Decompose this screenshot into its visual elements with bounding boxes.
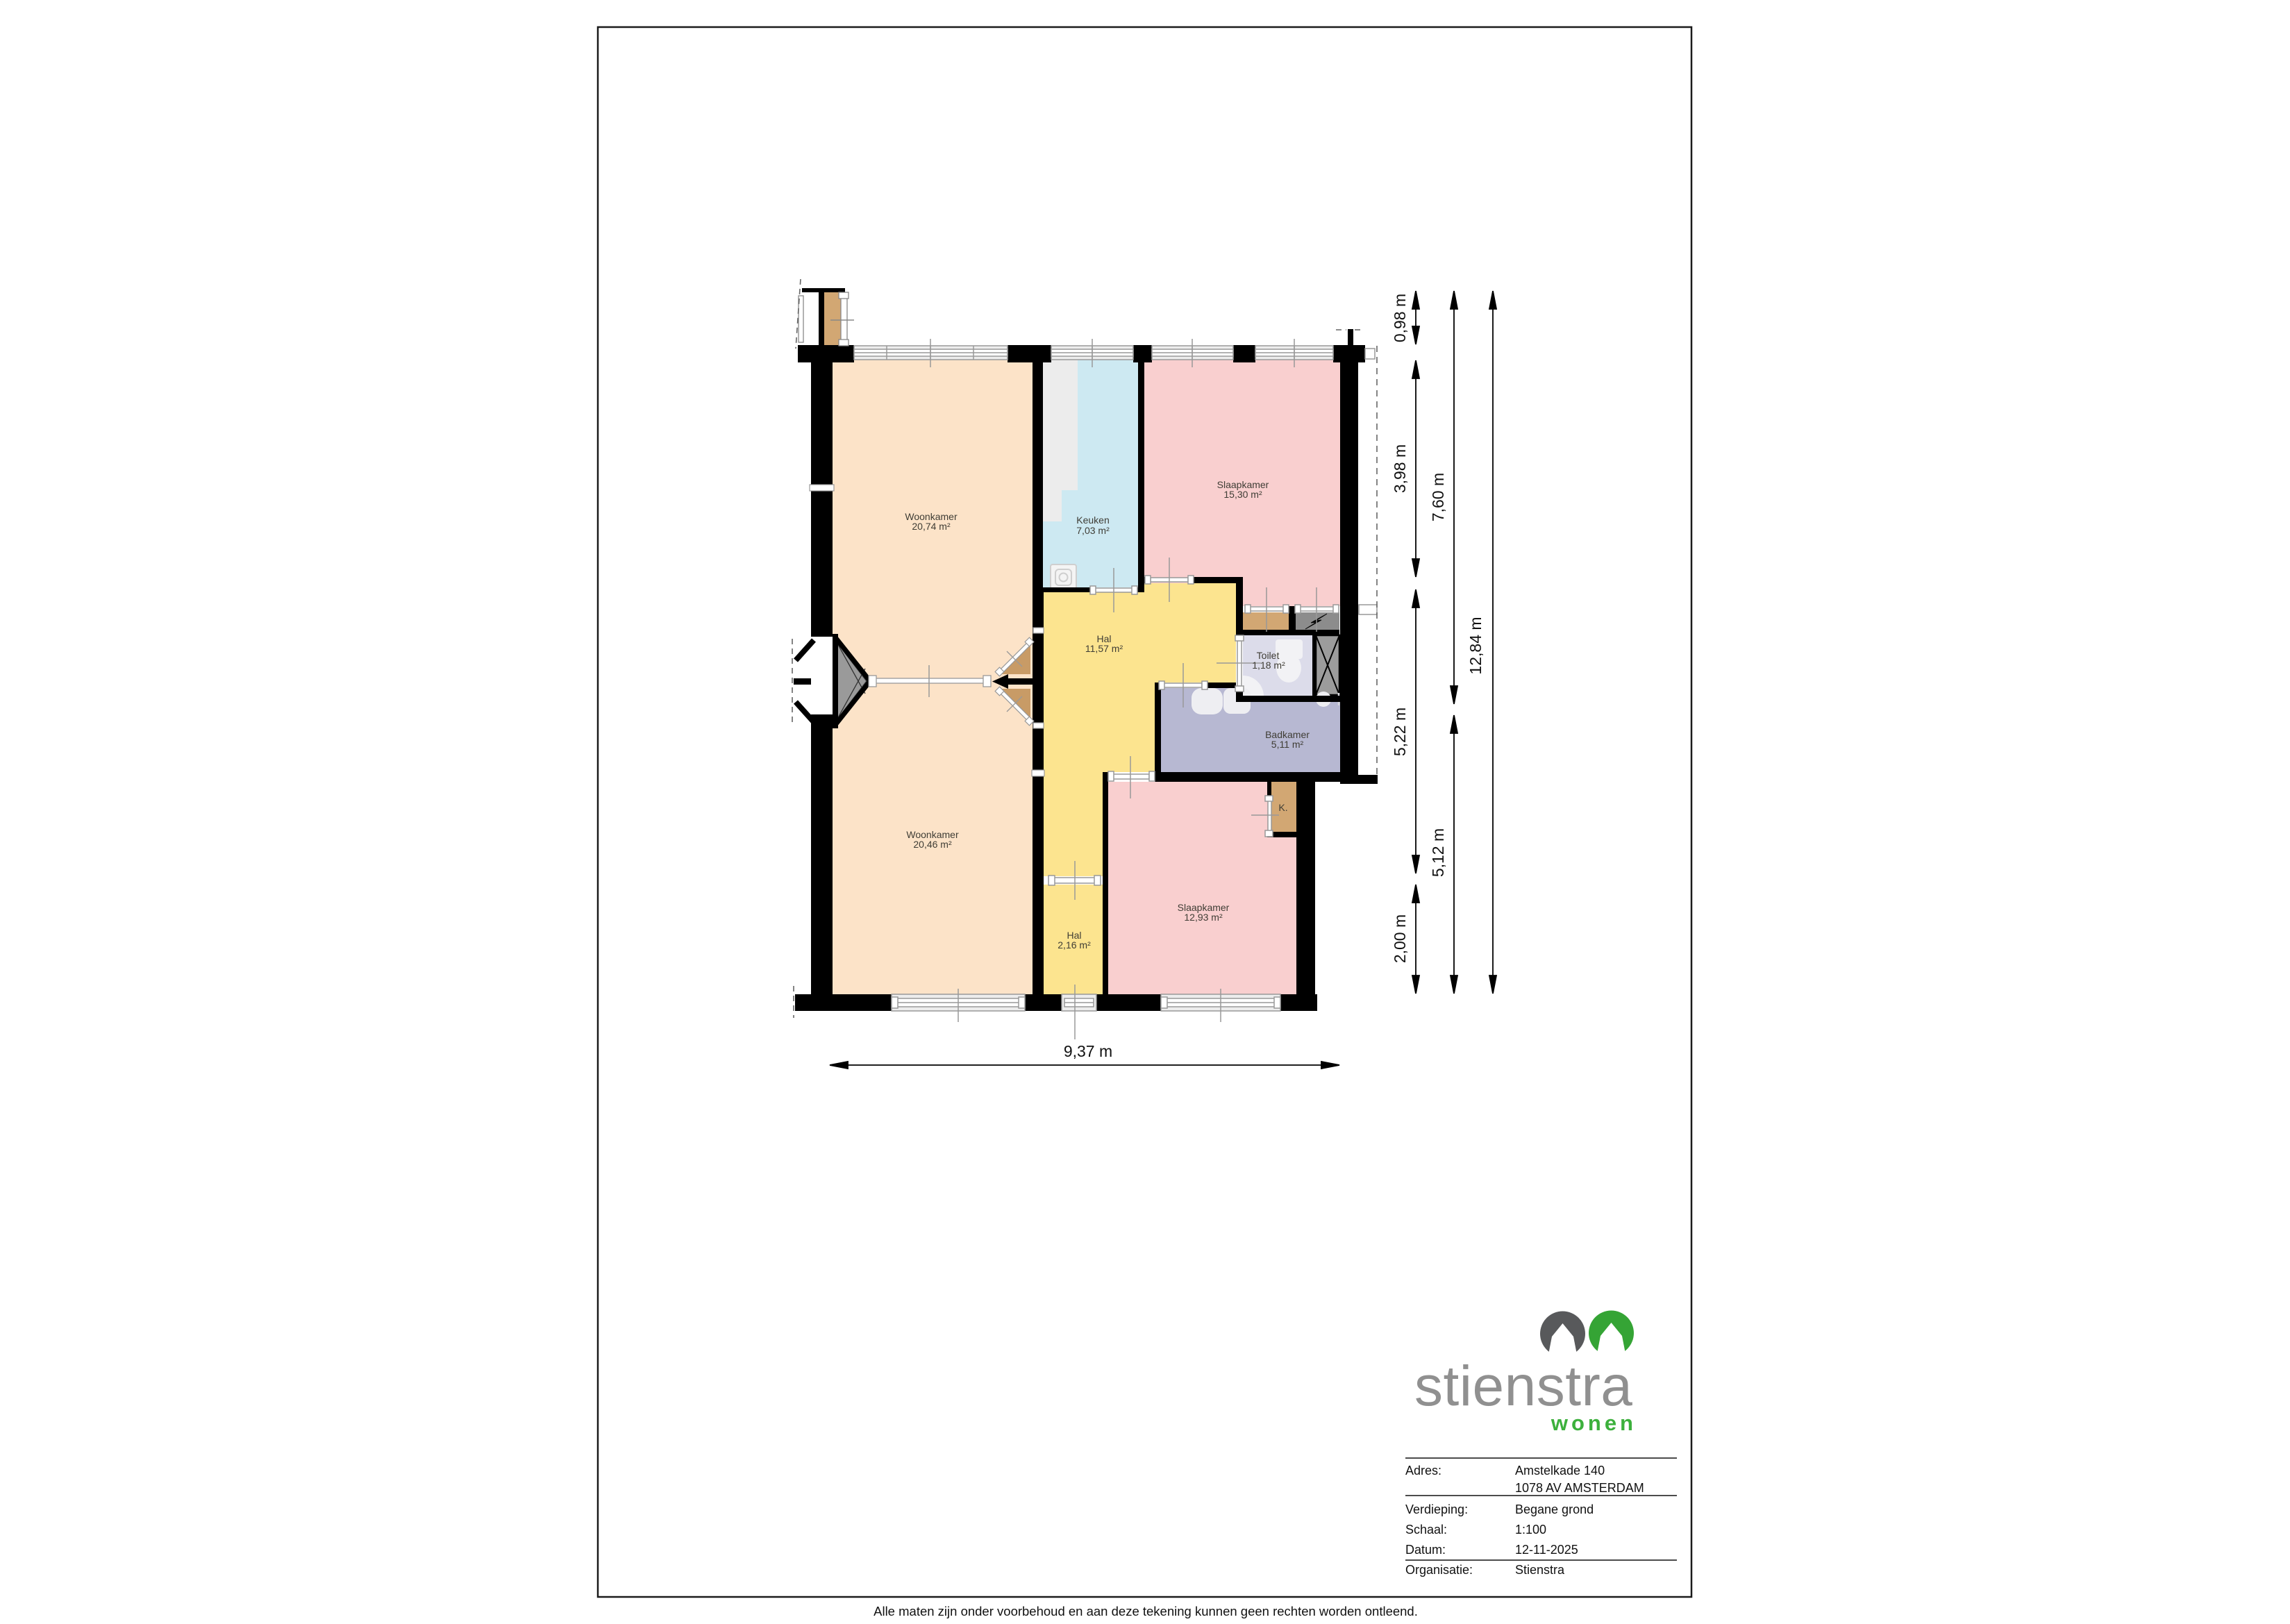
svg-text:5,12 m: 5,12 m bbox=[1429, 828, 1447, 877]
svg-text:stienstra: stienstra bbox=[1414, 1355, 1632, 1418]
svg-text:1,18 m²: 1,18 m² bbox=[1252, 660, 1285, 671]
svg-text:wonen: wonen bbox=[1551, 1411, 1637, 1435]
svg-text:5,11 m²: 5,11 m² bbox=[1271, 739, 1304, 750]
svg-text:11,57 m²: 11,57 m² bbox=[1085, 643, 1123, 654]
svg-text:20,46 m²: 20,46 m² bbox=[913, 839, 952, 850]
svg-text:12,84 m: 12,84 m bbox=[1466, 617, 1485, 674]
svg-text:Verdieping:: Verdieping: bbox=[1405, 1502, 1468, 1516]
svg-text:Adres:: Adres: bbox=[1405, 1464, 1441, 1477]
svg-text:5,22 m: 5,22 m bbox=[1391, 708, 1409, 756]
svg-text:2,00 m: 2,00 m bbox=[1391, 914, 1409, 963]
svg-text:Keuken: Keuken bbox=[1076, 514, 1109, 526]
svg-text:Stienstra: Stienstra bbox=[1515, 1563, 1565, 1577]
svg-text:9,37 m: 9,37 m bbox=[1064, 1042, 1112, 1060]
svg-text:Datum:: Datum: bbox=[1405, 1543, 1446, 1557]
svg-text:3,98 m: 3,98 m bbox=[1391, 444, 1409, 493]
svg-text:20,74 m²: 20,74 m² bbox=[912, 521, 951, 532]
svg-text:K.: K. bbox=[1278, 802, 1287, 813]
svg-text:0,98 m: 0,98 m bbox=[1391, 294, 1409, 342]
svg-text:1:100: 1:100 bbox=[1515, 1523, 1546, 1537]
svg-text:Amstelkade 140: Amstelkade 140 bbox=[1515, 1464, 1605, 1477]
svg-text:12-11-2025: 12-11-2025 bbox=[1515, 1543, 1578, 1557]
svg-text:7,60 m: 7,60 m bbox=[1429, 473, 1447, 521]
svg-text:7,03 m²: 7,03 m² bbox=[1076, 525, 1110, 536]
svg-text:2,16 m²: 2,16 m² bbox=[1058, 939, 1091, 951]
svg-text:Begane grond: Begane grond bbox=[1515, 1502, 1594, 1516]
svg-text:Organisatie:: Organisatie: bbox=[1405, 1563, 1473, 1577]
svg-text:1078 AV AMSTERDAM: 1078 AV AMSTERDAM bbox=[1515, 1481, 1644, 1495]
svg-text:Schaal:: Schaal: bbox=[1405, 1523, 1447, 1537]
svg-text:12,93 m²: 12,93 m² bbox=[1184, 912, 1223, 923]
svg-text:Alle maten zijn onder voorbeho: Alle maten zijn onder voorbehoud en aan … bbox=[874, 1604, 1418, 1618]
svg-text:15,30 m²: 15,30 m² bbox=[1223, 489, 1262, 500]
